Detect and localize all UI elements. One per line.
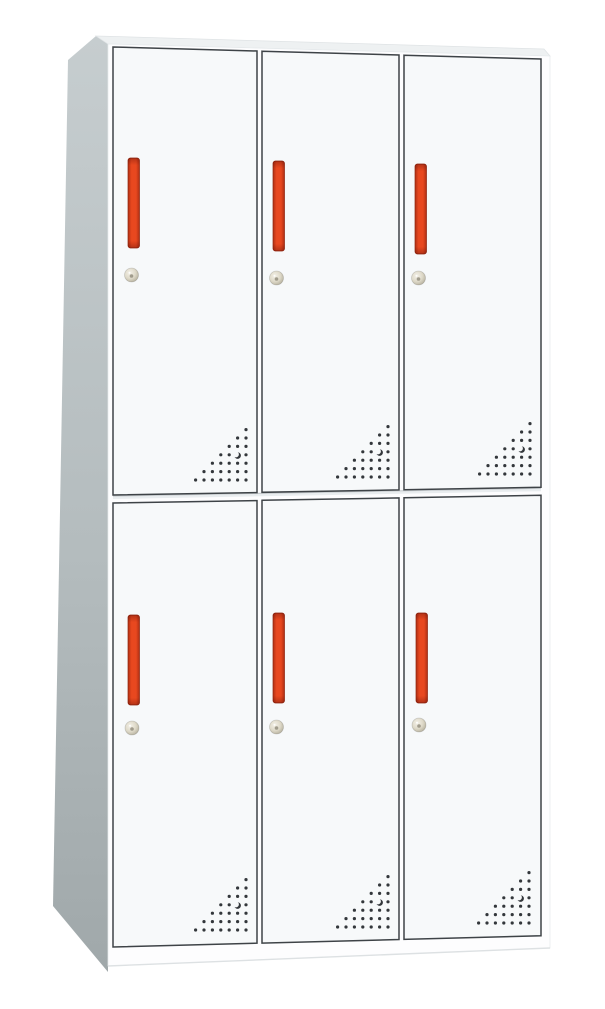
door-lock [270, 720, 284, 734]
door-handle [415, 164, 427, 254]
vent-dot [211, 928, 214, 931]
vent-dot [520, 430, 523, 433]
vent-dot [528, 439, 531, 442]
door-handle [273, 613, 285, 703]
vent-dot [194, 478, 197, 481]
lock-highlight [274, 275, 276, 277]
door-6 [404, 495, 541, 939]
vent-dot [244, 878, 247, 881]
vent-dot [219, 462, 222, 465]
vent-dot [353, 459, 356, 462]
lock-keyhole [275, 726, 279, 730]
vent-dot [478, 472, 481, 475]
vent-dot [202, 470, 205, 473]
vent-dot [485, 921, 488, 924]
vent-dot [370, 450, 373, 453]
vent-dot [520, 439, 523, 442]
lock-keyhole [130, 727, 134, 731]
vent-dot [244, 478, 247, 481]
vent-dot [486, 472, 489, 475]
vent-dot [361, 450, 364, 453]
vent-dot [244, 920, 247, 923]
vent-dot [219, 478, 222, 481]
vent-dot [378, 433, 381, 436]
vent-dot [502, 896, 505, 899]
vent-dot [228, 912, 231, 915]
vent-dot [386, 909, 389, 912]
lock-keyhole [417, 724, 421, 728]
vent-dot [378, 475, 381, 478]
vent-dot [361, 475, 364, 478]
lock-highlight [129, 272, 131, 274]
vent-dot [228, 920, 231, 923]
vent-dot [378, 917, 381, 920]
vent-dot [494, 921, 497, 924]
door-4 [113, 501, 257, 947]
vent-dot [353, 467, 356, 470]
vent-dot [236, 470, 239, 473]
vent-dot [336, 475, 339, 478]
vent-dot [211, 920, 214, 923]
vent-dot [378, 459, 381, 462]
vent-dot [512, 472, 515, 475]
vent-dot [528, 447, 531, 450]
vent-dot [386, 433, 389, 436]
vent-dot [386, 883, 389, 886]
vent-dot [244, 470, 247, 473]
vent-dot [228, 462, 231, 465]
vent-dot [353, 925, 356, 928]
vent-dot [370, 909, 373, 912]
vent-dot [386, 917, 389, 920]
door-lock [412, 271, 426, 285]
vent-dot [244, 912, 247, 915]
vent-dot [494, 905, 497, 908]
door-lock [270, 271, 284, 285]
vent-dot [386, 459, 389, 462]
vent-dot [378, 883, 381, 886]
vent-dot [386, 875, 389, 878]
vent-dot [512, 439, 515, 442]
vent-dot [386, 475, 389, 478]
vent-dot [236, 928, 239, 931]
vent-dot [211, 478, 214, 481]
vent-dot [228, 895, 231, 898]
vent-dot [511, 888, 514, 891]
vent-dot [236, 478, 239, 481]
vent-crescent-cutout [375, 898, 381, 904]
vent-dot [503, 472, 506, 475]
vent-dot [519, 879, 522, 882]
vent-dot [353, 917, 356, 920]
vent-crescent-cutout [516, 894, 522, 900]
vent-dot [386, 925, 389, 928]
vent-dot [511, 913, 514, 916]
handle-shading [128, 615, 140, 705]
vent-dot [528, 464, 531, 467]
vent-dot [353, 475, 356, 478]
vent-dot [202, 928, 205, 931]
vent-dot [485, 913, 488, 916]
vent-crescent-cutout [517, 445, 523, 451]
vent-dot [228, 470, 231, 473]
vent-dot [378, 442, 381, 445]
vent-dot [477, 921, 480, 924]
vent-dot [494, 913, 497, 916]
vent-dot [378, 892, 381, 895]
vent-dot [228, 478, 231, 481]
lock-highlight [416, 722, 418, 724]
vent-dot [370, 900, 373, 903]
vent-dot [361, 909, 364, 912]
vent-dot [194, 928, 197, 931]
vent-dot [386, 467, 389, 470]
vent-dot [378, 467, 381, 470]
handle-shading [273, 613, 285, 703]
vent-dot [520, 472, 523, 475]
vent-dot [228, 903, 231, 906]
vent-dot [370, 442, 373, 445]
vent-dot [236, 895, 239, 898]
handle-shading [273, 161, 285, 251]
vent-dot [219, 928, 222, 931]
vent-dot [495, 472, 498, 475]
vent-dot [528, 472, 531, 475]
door-handle [273, 161, 285, 251]
locker-side-panel [53, 36, 108, 972]
vent-dot [211, 470, 214, 473]
vent-dot [236, 886, 239, 889]
vent-dot [519, 905, 522, 908]
vent-dot [361, 925, 364, 928]
vent-dot [244, 895, 247, 898]
vent-dot [386, 425, 389, 428]
vent-dot [511, 896, 514, 899]
vent-dot [512, 464, 515, 467]
lock-keyhole [130, 274, 134, 278]
vent-dot [520, 456, 523, 459]
vent-crescent-cutout [233, 901, 239, 907]
vent-dot [336, 925, 339, 928]
vent-dot [495, 456, 498, 459]
vent-dot [228, 928, 231, 931]
door-2 [262, 51, 399, 492]
door-lock [125, 268, 139, 282]
vent-dot [219, 453, 222, 456]
vent-dot [370, 467, 373, 470]
vent-dot [202, 920, 205, 923]
vent-dot [244, 886, 247, 889]
vent-dot [503, 456, 506, 459]
door-lock [125, 721, 139, 735]
vent-dot [211, 462, 214, 465]
vent-dot [219, 912, 222, 915]
vent-dot [527, 896, 530, 899]
vent-dot [512, 447, 515, 450]
door-face [262, 498, 399, 943]
lock-highlight [416, 275, 418, 277]
product-photo-canvas [0, 0, 605, 1009]
handle-shading [415, 164, 427, 254]
vent-dot [511, 905, 514, 908]
vent-dot [386, 892, 389, 895]
lock-highlight [129, 725, 131, 727]
vent-dot [344, 475, 347, 478]
vent-dot [528, 430, 531, 433]
vent-dot [244, 903, 247, 906]
vent-dot [386, 900, 389, 903]
vent-dot [527, 871, 530, 874]
vent-dot [519, 888, 522, 891]
vent-dot [520, 464, 523, 467]
vent-dot [386, 450, 389, 453]
door-5 [262, 498, 399, 943]
vent-dot [528, 456, 531, 459]
door-1 [113, 47, 257, 495]
vent-dot [378, 909, 381, 912]
vent-dot [361, 467, 364, 470]
vent-crescent-cutout [375, 448, 381, 454]
vent-dot [486, 464, 489, 467]
vent-dot [502, 913, 505, 916]
vent-dot [219, 920, 222, 923]
vent-dot [344, 925, 347, 928]
vent-dot [527, 879, 530, 882]
vent-dot [219, 470, 222, 473]
vent-dot [502, 905, 505, 908]
vent-dot [511, 921, 514, 924]
door-face [262, 51, 399, 492]
vent-dot [370, 475, 373, 478]
vent-dot [527, 913, 530, 916]
vent-crescent-cutout [233, 451, 239, 457]
vent-dot [236, 920, 239, 923]
vent-dot [512, 456, 515, 459]
vent-dot [344, 467, 347, 470]
lock-keyhole [275, 277, 279, 281]
vent-dot [378, 925, 381, 928]
vent-dot [370, 459, 373, 462]
door-lock [412, 718, 426, 732]
vent-dot [202, 478, 205, 481]
locker-cabinet-image [0, 0, 605, 1009]
vent-dot [353, 909, 356, 912]
vent-dot [236, 462, 239, 465]
vent-dot [495, 464, 498, 467]
lock-highlight [274, 724, 276, 726]
vent-dot [219, 903, 222, 906]
vent-dot [503, 464, 506, 467]
vent-dot [502, 921, 505, 924]
vent-dot [228, 453, 231, 456]
vent-dot [370, 892, 373, 895]
vent-dot [344, 917, 347, 920]
handle-shading [416, 613, 428, 703]
vent-dot [527, 921, 530, 924]
door-face [404, 55, 541, 490]
vent-dot [236, 445, 239, 448]
door-handle [128, 615, 140, 705]
vent-dot [244, 445, 247, 448]
vent-dot [244, 928, 247, 931]
door-3 [404, 55, 541, 490]
vent-dot [361, 459, 364, 462]
vent-dot [519, 921, 522, 924]
vent-dot [528, 422, 531, 425]
door-handle [416, 613, 428, 703]
vent-dot [244, 436, 247, 439]
vent-dot [236, 436, 239, 439]
vent-dot [527, 905, 530, 908]
vent-dot [503, 447, 506, 450]
vent-dot [527, 888, 530, 891]
lock-keyhole [417, 277, 421, 281]
vent-dot [386, 442, 389, 445]
vent-dot [236, 912, 239, 915]
vent-dot [244, 453, 247, 456]
vent-dot [519, 913, 522, 916]
vent-dot [361, 917, 364, 920]
vent-dot [228, 445, 231, 448]
vent-dot [211, 912, 214, 915]
door-face [404, 495, 541, 939]
vent-dot [370, 925, 373, 928]
vent-dot [361, 900, 364, 903]
door-handle [128, 158, 140, 248]
vent-dot [244, 462, 247, 465]
vent-dot [370, 917, 373, 920]
vent-dot [244, 428, 247, 431]
handle-shading [128, 158, 140, 248]
